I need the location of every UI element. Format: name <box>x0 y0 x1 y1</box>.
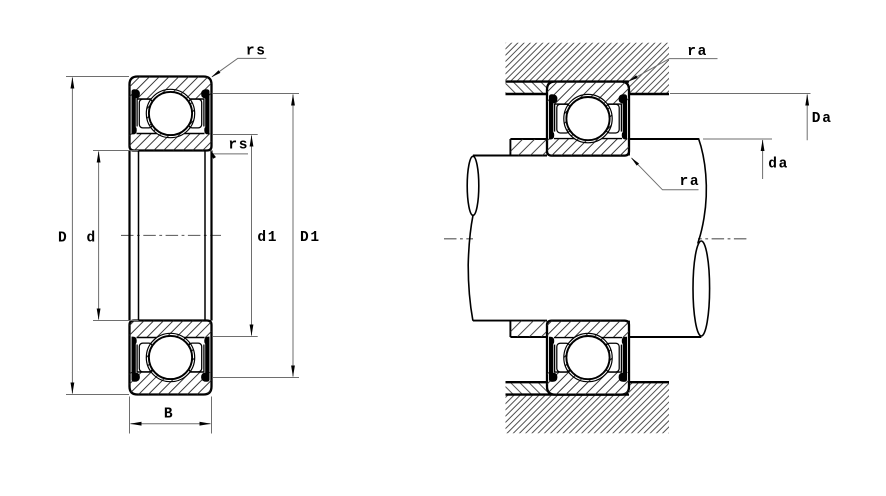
svg-text:rs: rs <box>246 44 267 60</box>
svg-text:rs: rs <box>228 138 249 154</box>
svg-text:B: B <box>164 407 174 423</box>
svg-text:D1: D1 <box>300 230 321 246</box>
svg-text:ra: ra <box>687 44 708 60</box>
svg-text:d: d <box>87 231 97 247</box>
svg-text:D: D <box>58 230 68 246</box>
svg-text:Da: Da <box>812 111 833 127</box>
svg-text:ra: ra <box>680 174 701 190</box>
svg-text:da: da <box>768 157 789 173</box>
svg-text:d1: d1 <box>257 230 278 246</box>
